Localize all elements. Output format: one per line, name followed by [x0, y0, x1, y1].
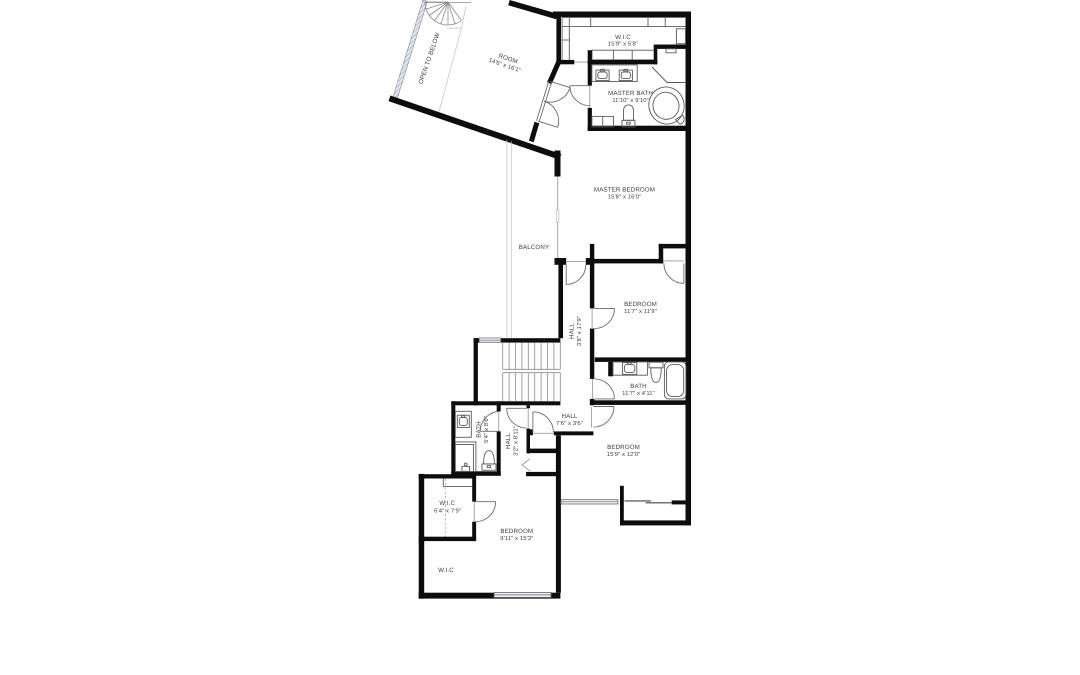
svg-text:BATH: BATH — [476, 421, 483, 438]
svg-text:15'9" x 5'8": 15'9" x 5'8" — [608, 41, 638, 48]
svg-text:6'4" x 7'9": 6'4" x 7'9" — [434, 507, 461, 514]
svg-text:W.I.C: W.I.C — [438, 567, 454, 574]
svg-text:11'7" x 11'9": 11'7" x 11'9" — [624, 308, 657, 315]
svg-text:11'7" x 4'11": 11'7" x 4'11" — [622, 390, 655, 397]
svg-text:BATH: BATH — [630, 383, 647, 390]
svg-text:BEDROOM: BEDROOM — [500, 528, 533, 535]
svg-text:W.I.C: W.I.C — [439, 500, 455, 507]
svg-text:BEDROOM: BEDROOM — [607, 444, 640, 451]
svg-text:9'11" x 15'3": 9'11" x 15'3" — [500, 535, 533, 542]
svg-text:15'8" x 16'0": 15'8" x 16'0" — [608, 194, 642, 201]
svg-text:BALCONY: BALCONY — [519, 244, 549, 251]
svg-text:HALL: HALL — [505, 433, 512, 449]
svg-text:W.I.C: W.I.C — [615, 34, 631, 41]
svg-text:MASTER BEDROOM: MASTER BEDROOM — [594, 186, 655, 193]
svg-text:7'6" x 3'6": 7'6" x 3'6" — [556, 420, 583, 427]
svg-text:3'2" x 8'11": 3'2" x 8'11" — [512, 426, 519, 456]
svg-text:MASTER BATH: MASTER BATH — [608, 90, 653, 97]
svg-text:HALL: HALL — [569, 323, 576, 339]
svg-text:HALL: HALL — [562, 413, 578, 420]
svg-text:BEDROOM: BEDROOM — [624, 301, 657, 308]
svg-text:15'9" x 12'0": 15'9" x 12'0" — [607, 451, 641, 458]
svg-text:3'8" x 17'9": 3'8" x 17'9" — [576, 316, 583, 346]
svg-text:11'10" x 9'10": 11'10" x 9'10" — [612, 97, 649, 104]
svg-text:5'4" x 8'6": 5'4" x 8'6" — [483, 416, 490, 443]
